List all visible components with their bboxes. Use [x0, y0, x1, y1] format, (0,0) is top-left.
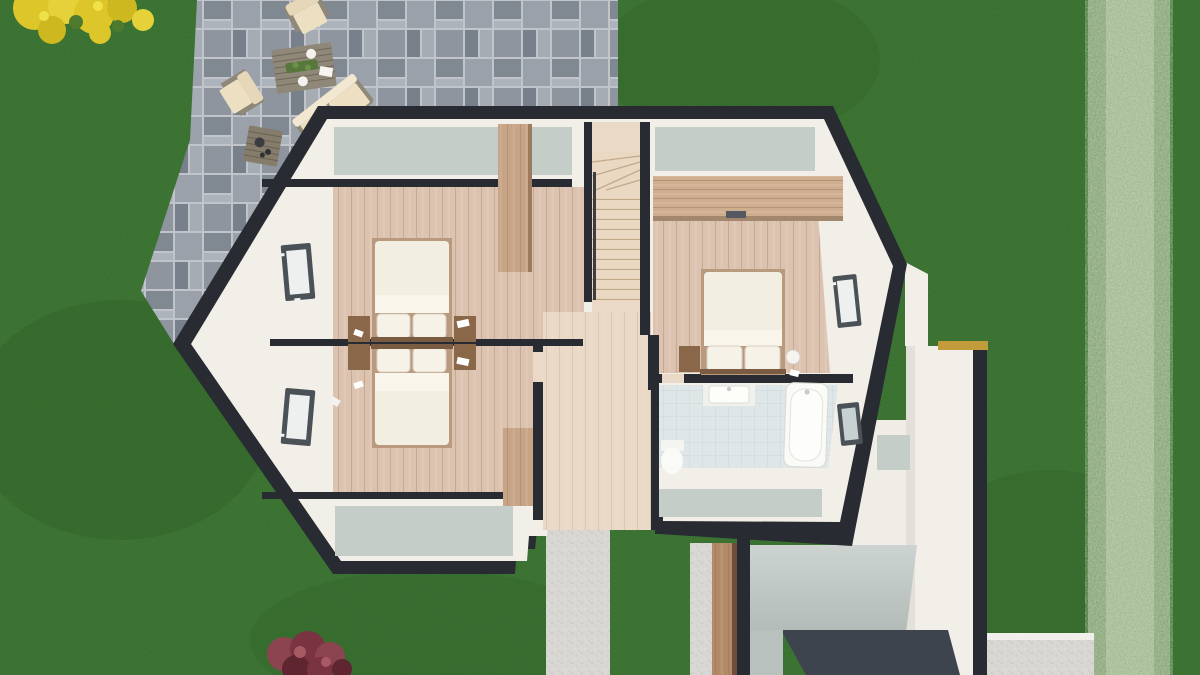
roof-panel-top-right	[655, 127, 815, 171]
bush-highlight	[39, 11, 49, 21]
roof-panel-top-left	[334, 127, 572, 175]
bed-sheet-fold	[375, 295, 449, 313]
annex-east-dark-wall	[973, 345, 987, 675]
wardrobe-left-north-edge	[528, 124, 532, 272]
annex-dark-mat	[781, 630, 960, 675]
bush-clump	[132, 9, 154, 31]
wardrobe-right-long-grain	[653, 176, 843, 221]
annex-jog-wall	[905, 262, 928, 346]
bed-pillow	[413, 314, 446, 338]
wall-stairhall-east	[640, 122, 650, 335]
patio-side-table	[243, 125, 283, 166]
bed-sheet-fold	[704, 330, 782, 346]
stair-handrail	[593, 172, 596, 300]
wardrobe-left-north-grain	[498, 124, 532, 272]
corner-pad-curb	[986, 633, 1094, 641]
bathtub	[784, 382, 829, 467]
bed-pillow	[745, 346, 780, 371]
bed-pillow	[377, 348, 410, 372]
wall-bathroom-west-lower	[651, 385, 659, 517]
bush-highlight	[321, 657, 331, 667]
bed-pillow	[413, 348, 446, 372]
sink-faucet	[727, 387, 731, 391]
window-east-bathroom	[837, 402, 863, 446]
staircase	[592, 152, 640, 302]
toilet-bowl	[661, 448, 683, 474]
floor-plan-render	[0, 0, 1200, 675]
bush-highlight	[93, 1, 103, 11]
annex-timber-wall-edge	[732, 543, 737, 675]
bedside-lamp	[786, 350, 800, 364]
window-glass	[286, 249, 310, 295]
bathroom-sink	[703, 383, 755, 406]
annex-sage-wedge	[877, 435, 910, 470]
nightstand	[348, 316, 370, 342]
bed-sheet-fold	[375, 373, 449, 391]
stair-treads	[592, 190, 640, 302]
annex-west-dark-wall	[737, 537, 750, 675]
toilet	[661, 440, 684, 474]
bed-pillow	[707, 346, 742, 371]
corner-pad	[986, 640, 1094, 675]
annex-concrete-strip	[690, 543, 712, 675]
annex-right-wall	[906, 346, 973, 675]
wall-bedroom-south-door-gap	[662, 374, 684, 383]
wardrobe-right-handle	[726, 211, 746, 218]
bed-headboard	[700, 369, 786, 374]
nightstand	[454, 344, 476, 370]
annex-floor-lower-strip	[750, 630, 783, 675]
front-walkway	[546, 522, 610, 675]
bed-pillow	[377, 314, 410, 338]
window-handle	[294, 298, 300, 302]
wall-left-south	[262, 492, 533, 499]
annex-yellow-accent-edge	[938, 341, 988, 350]
bush-clump	[89, 22, 111, 44]
wall-stairhall-west	[584, 122, 592, 302]
bed-headboard	[371, 344, 453, 349]
wardrobe-left-south-grain	[503, 428, 533, 506]
hedge-row	[1085, 0, 1173, 675]
annex-floor	[750, 545, 917, 633]
hedge-foliage-texture	[1085, 0, 1173, 675]
window-handle	[279, 253, 284, 256]
nightstand	[348, 344, 370, 370]
wardrobe-right-shadow	[653, 216, 843, 221]
screenshot-stage	[0, 0, 1200, 675]
bed-headboard	[371, 337, 453, 342]
bush-gap	[112, 20, 124, 32]
roof-panel-bathroom	[658, 489, 822, 517]
bush-highlight	[294, 646, 306, 658]
bush-gap	[69, 15, 83, 29]
wall-bedroom-left-south-east-gap	[533, 352, 543, 382]
patio-coffee-table	[271, 42, 337, 94]
roof-panel-bottom-left	[335, 506, 513, 556]
nightstand	[679, 346, 700, 372]
window-handle	[279, 433, 284, 436]
window-handle	[831, 282, 836, 286]
window-glass	[286, 394, 310, 440]
bathtub-basin	[789, 388, 823, 461]
